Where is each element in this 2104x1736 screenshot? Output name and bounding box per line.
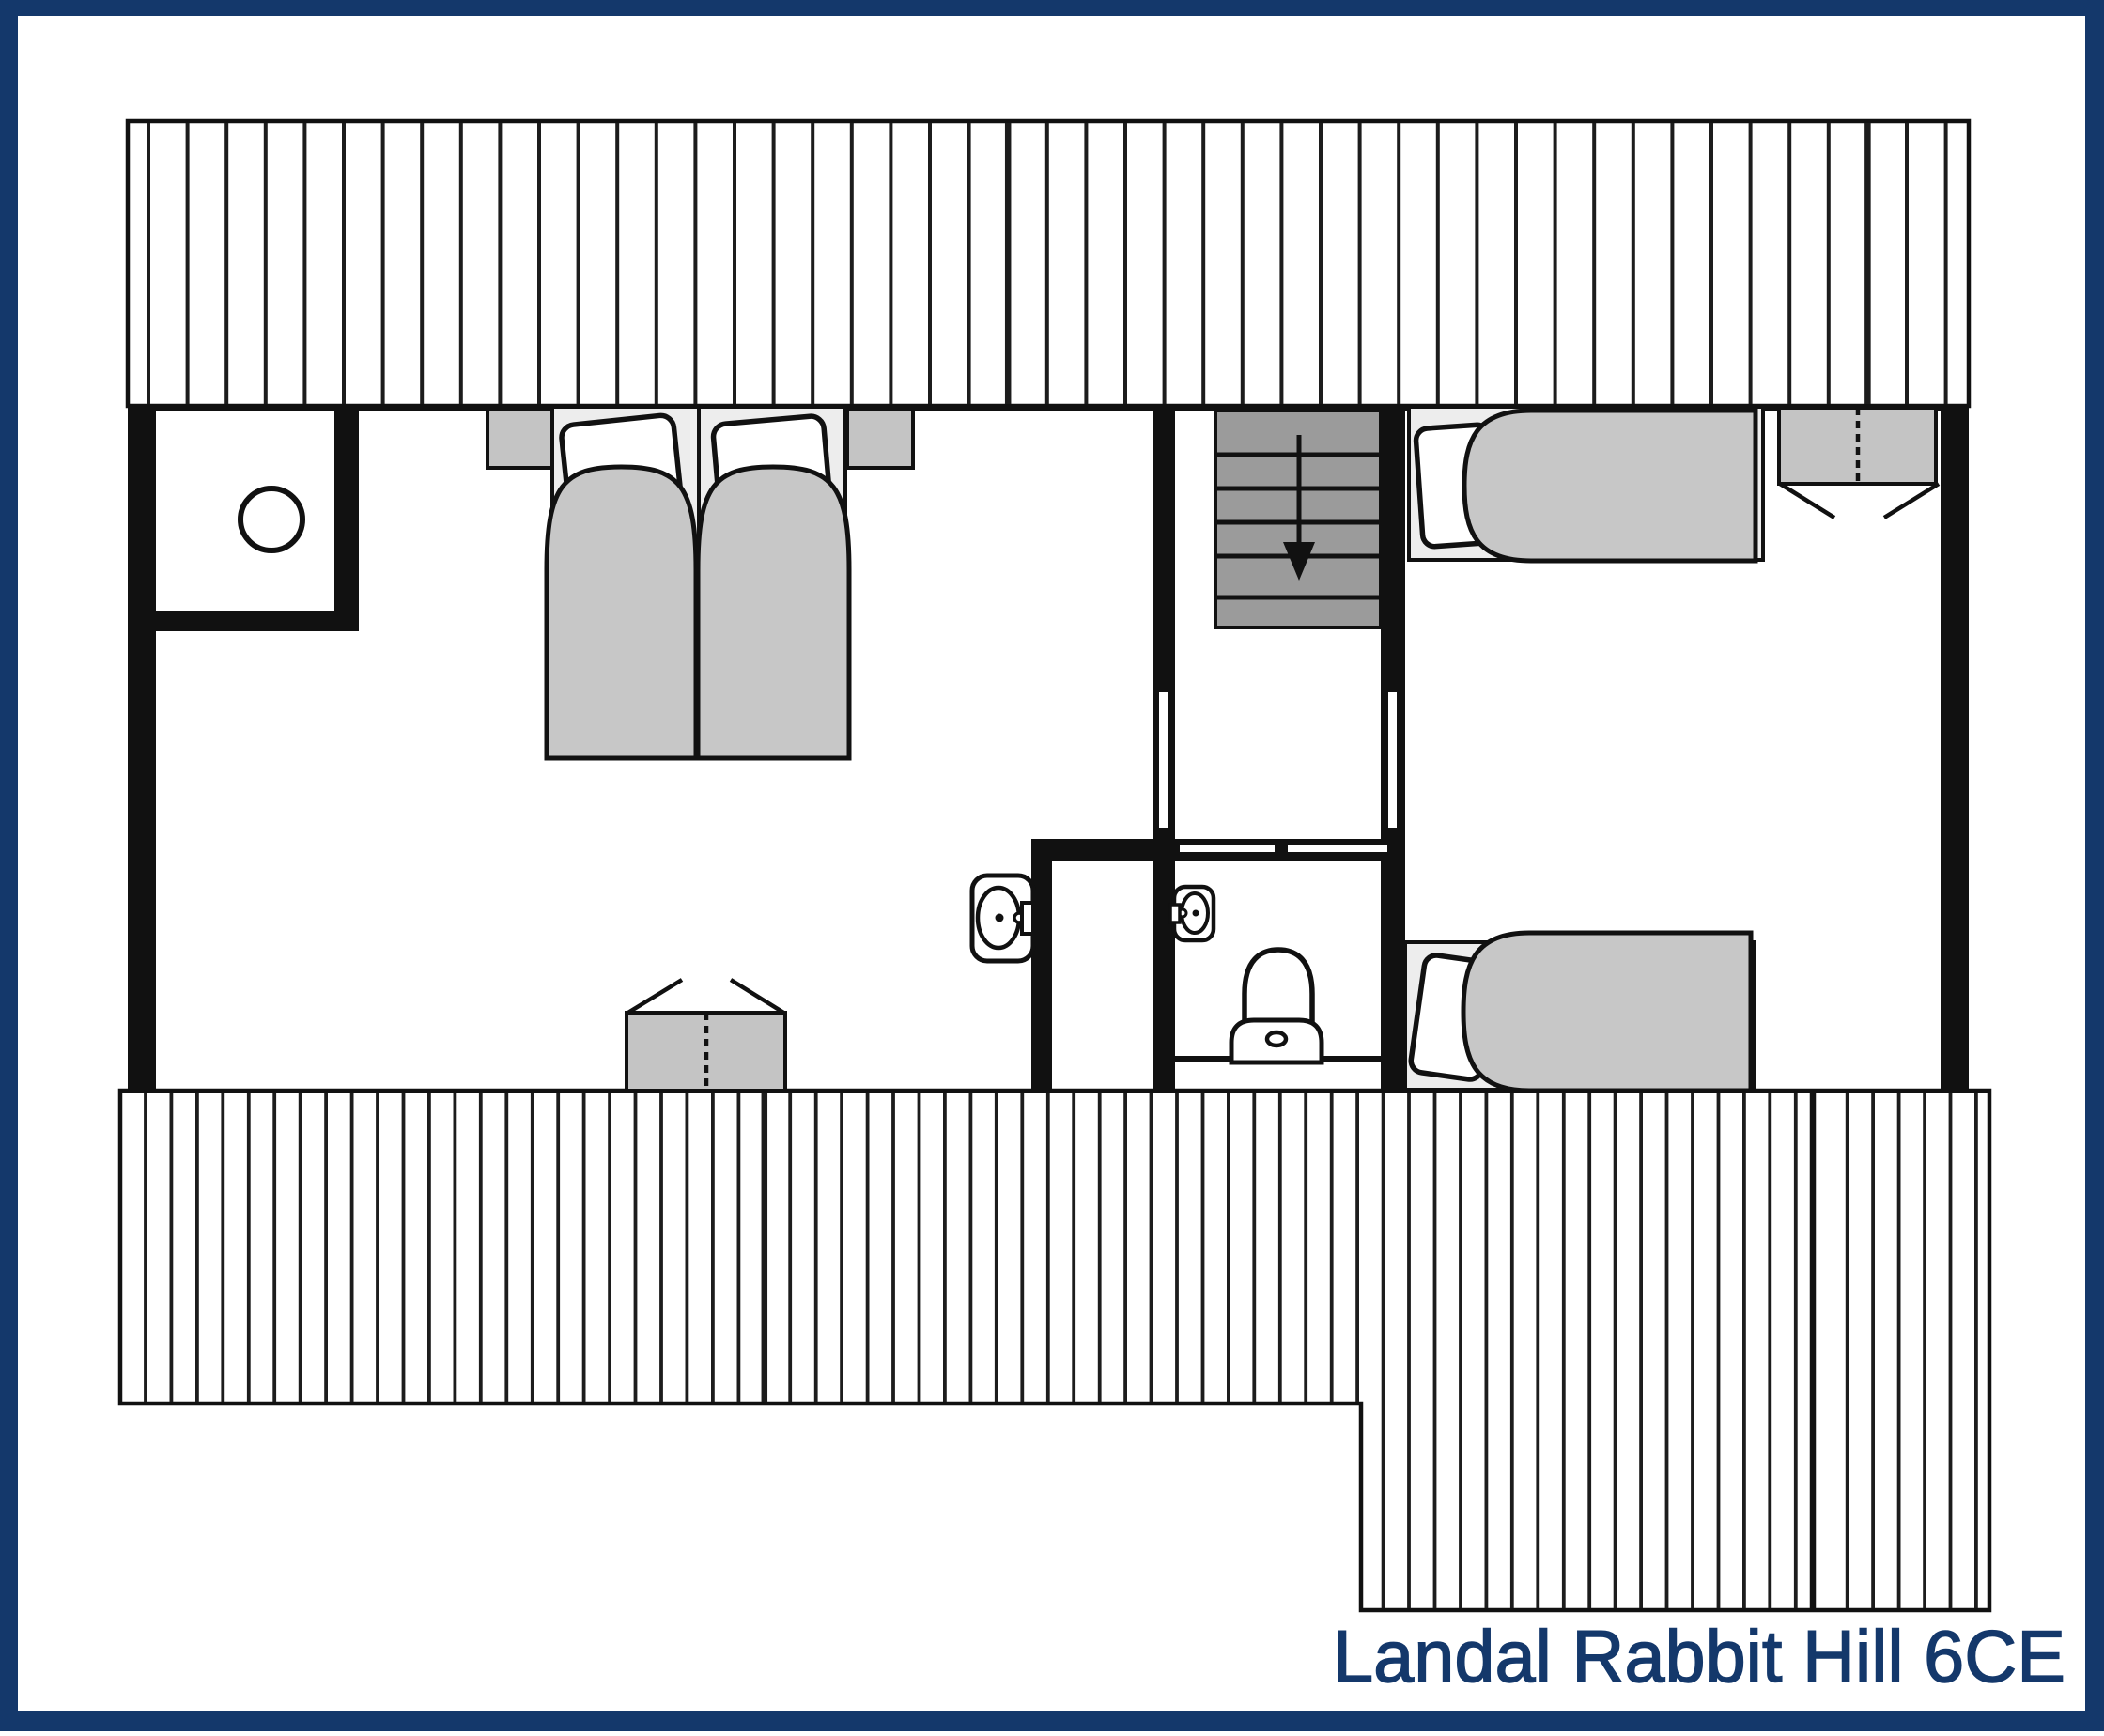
svg-text:Landal Rabbit Hill 6CE: Landal Rabbit Hill 6CE <box>1333 1615 2065 1697</box>
